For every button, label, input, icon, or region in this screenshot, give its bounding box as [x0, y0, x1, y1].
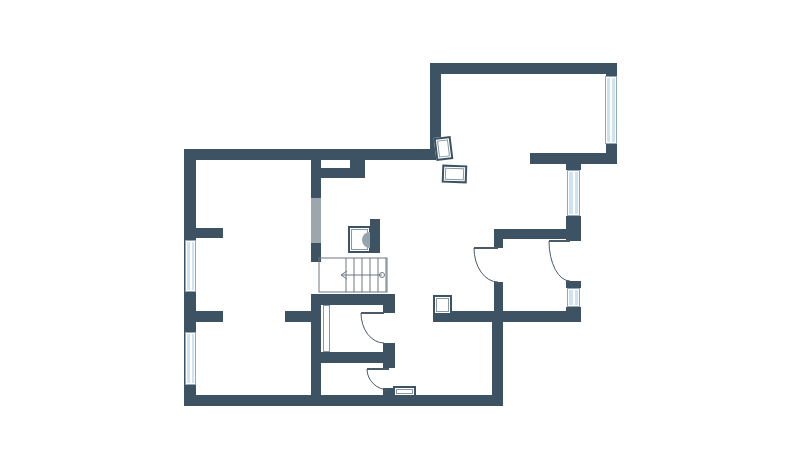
door-lobby-swing-arc [367, 369, 389, 390]
boiler-cylinder-icon [362, 232, 370, 248]
door-bathroom-swing-arc [361, 313, 384, 343]
door-hall-east-swing-arc [549, 241, 570, 281]
floor-plan-screenshot [0, 0, 800, 470]
floor-plan-canvas [0, 0, 800, 470]
plan-overlay [0, 0, 800, 470]
door-hall-west-swing-arc [474, 248, 498, 282]
